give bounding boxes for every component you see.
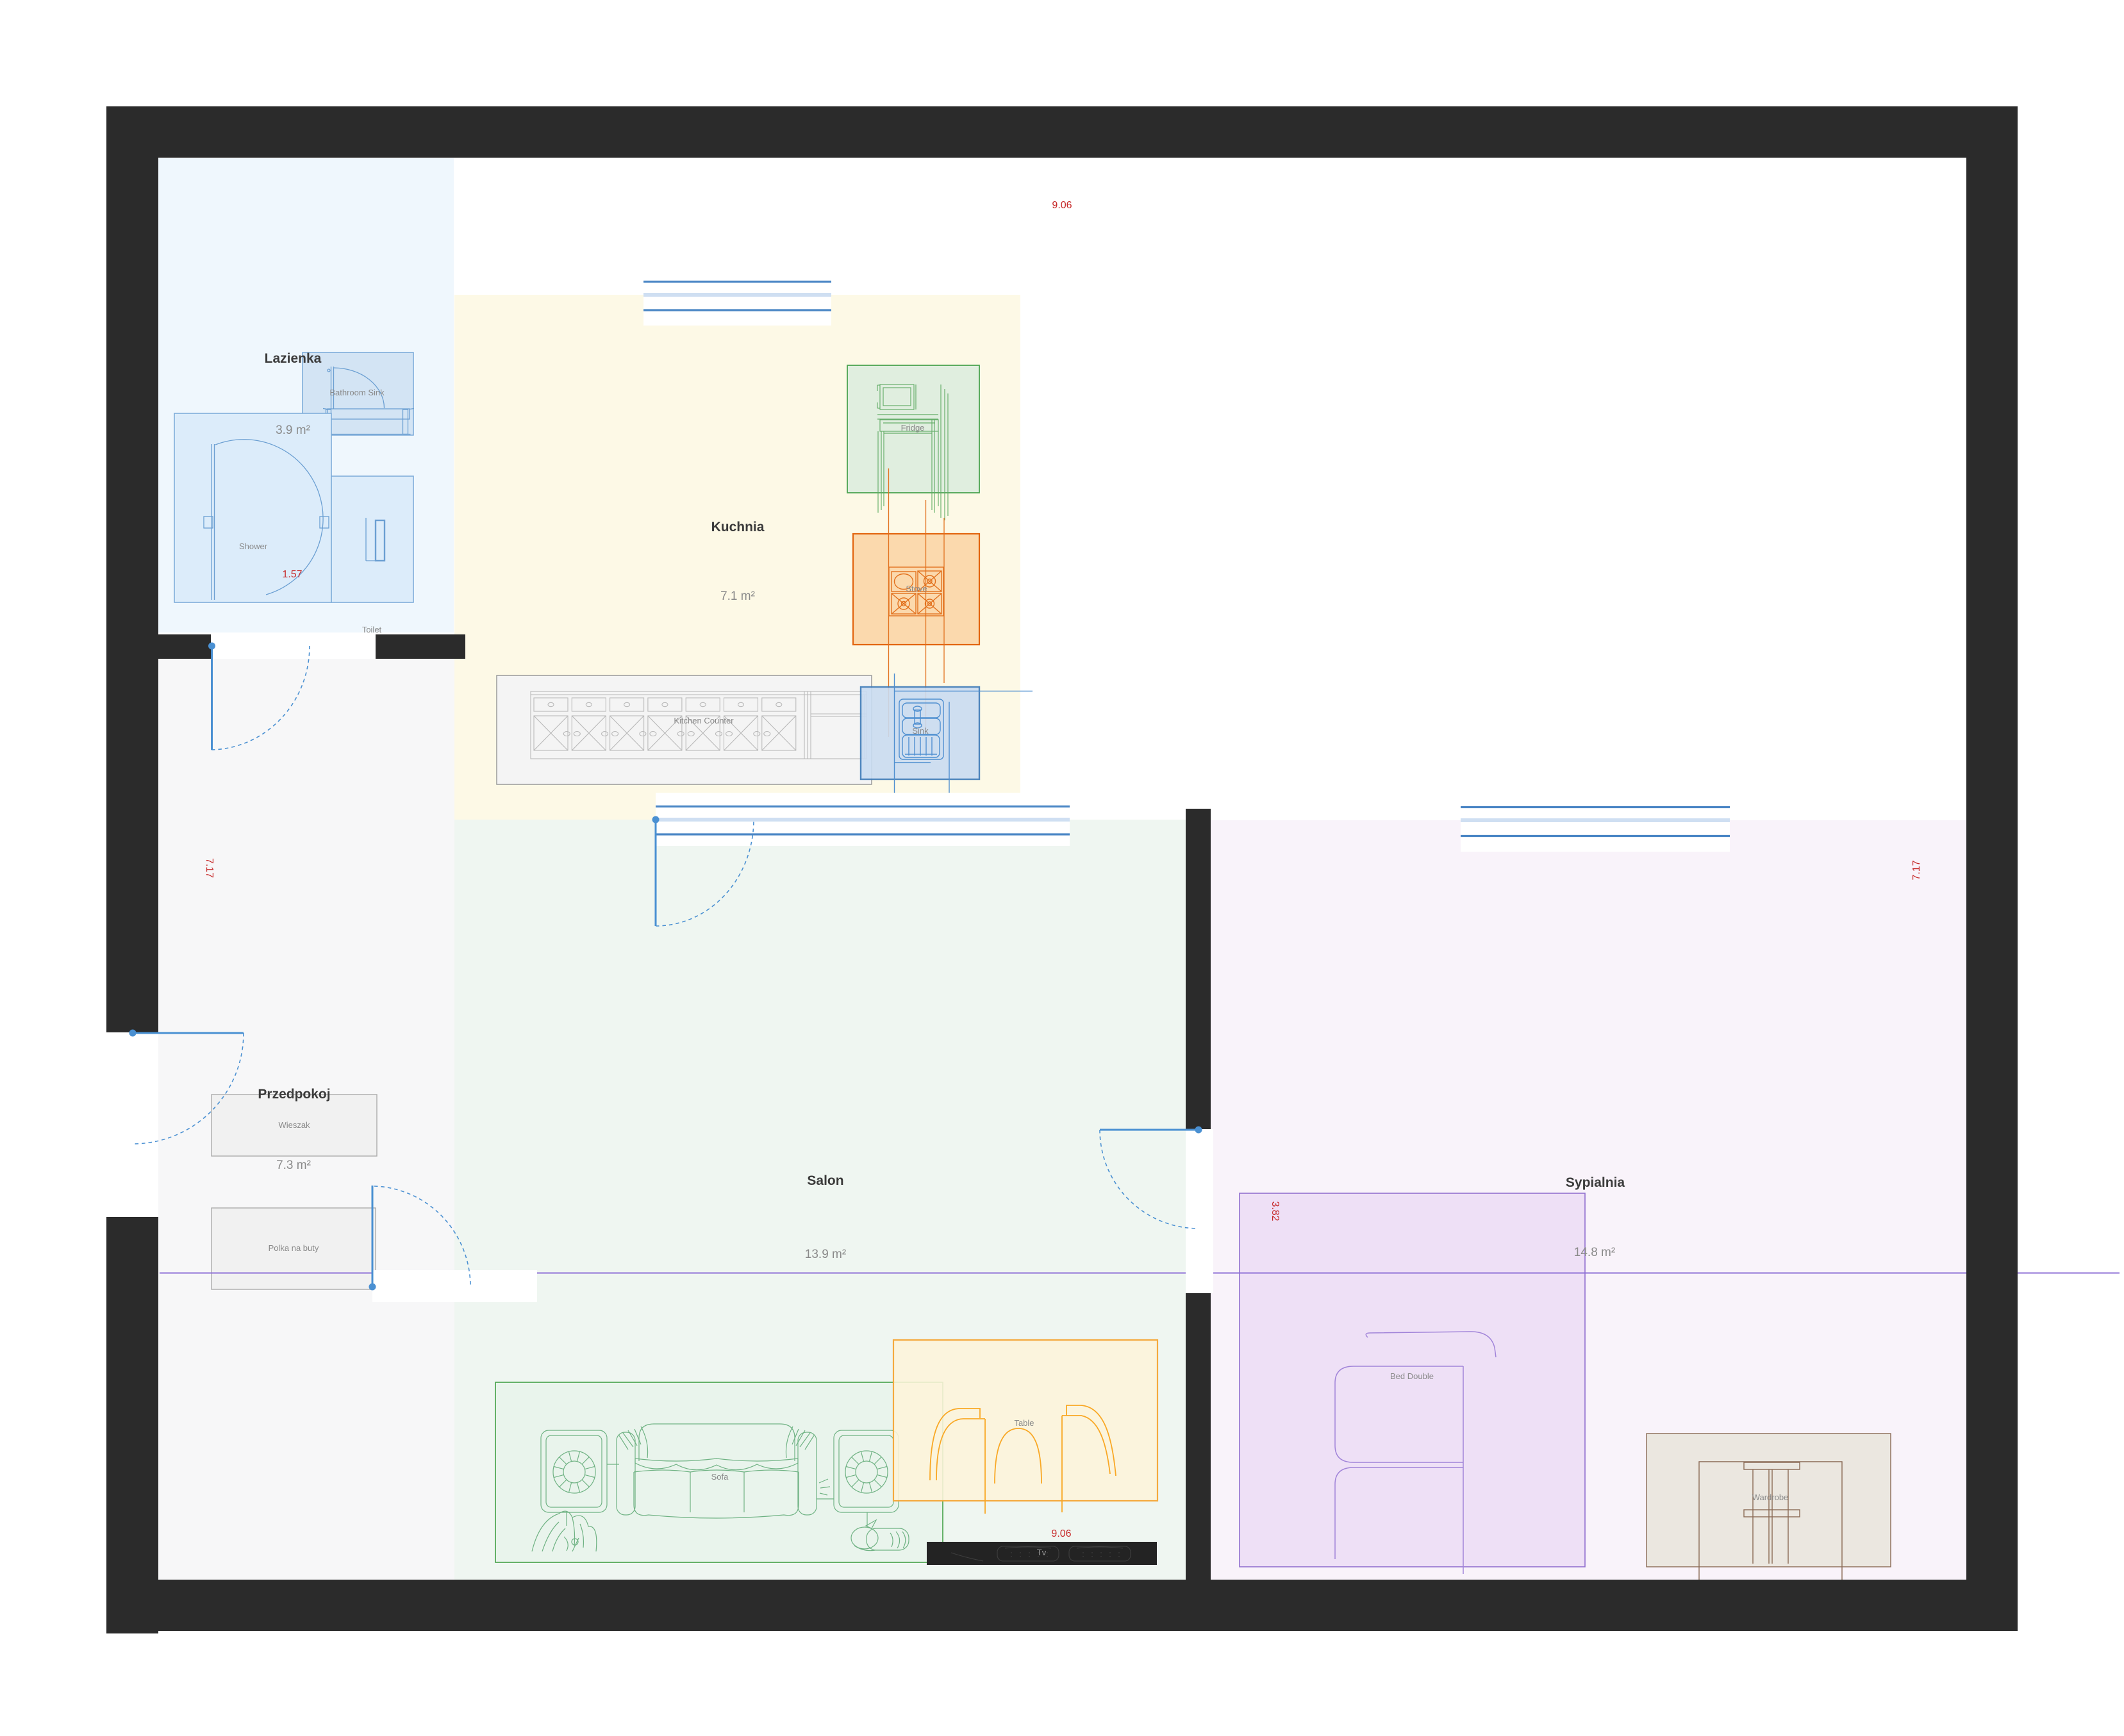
svg-text:Wieszak: Wieszak xyxy=(278,1120,310,1130)
svg-text:13.9 m²: 13.9 m² xyxy=(805,1248,846,1261)
svg-text:9.06: 9.06 xyxy=(1052,200,1072,211)
svg-text:Lazienka: Lazienka xyxy=(265,351,322,366)
svg-text:Kitchen Counter: Kitchen Counter xyxy=(674,716,734,725)
svg-text:Polka na buty: Polka na buty xyxy=(269,1243,319,1253)
svg-text:Bed Double: Bed Double xyxy=(1390,1371,1434,1381)
svg-text:Fridge: Fridge xyxy=(901,423,925,433)
svg-text:Salon: Salon xyxy=(807,1173,843,1188)
svg-text:Tv: Tv xyxy=(1037,1548,1047,1557)
svg-text:Sypialnia: Sypialnia xyxy=(1566,1175,1625,1190)
svg-text:Sink: Sink xyxy=(912,726,929,736)
svg-text:Stove: Stove xyxy=(906,584,927,593)
svg-text:7.17: 7.17 xyxy=(1911,860,1922,880)
svg-text:Kuchnia: Kuchnia xyxy=(711,520,765,534)
svg-text:7.17: 7.17 xyxy=(204,858,215,878)
svg-text:Wardrobe: Wardrobe xyxy=(1752,1492,1789,1502)
svg-text:14.8 m²: 14.8 m² xyxy=(1574,1246,1615,1259)
svg-text:Toilet: Toilet xyxy=(362,625,382,634)
svg-text:Table: Table xyxy=(1014,1418,1034,1428)
svg-text:Przedpokoj: Przedpokoj xyxy=(258,1087,330,1102)
svg-text:Shower: Shower xyxy=(239,541,268,551)
svg-text:7.3 m²: 7.3 m² xyxy=(276,1159,311,1172)
svg-text:3.82: 3.82 xyxy=(1270,1201,1281,1221)
svg-text:Bathroom Sink: Bathroom Sink xyxy=(329,388,385,397)
svg-text:3.9 m²: 3.9 m² xyxy=(276,424,310,437)
svg-text:1.57: 1.57 xyxy=(282,569,302,580)
svg-text:9.06: 9.06 xyxy=(1051,1528,1071,1539)
svg-text:7.1 m²: 7.1 m² xyxy=(720,590,755,603)
svg-text:Sofa: Sofa xyxy=(711,1472,729,1482)
